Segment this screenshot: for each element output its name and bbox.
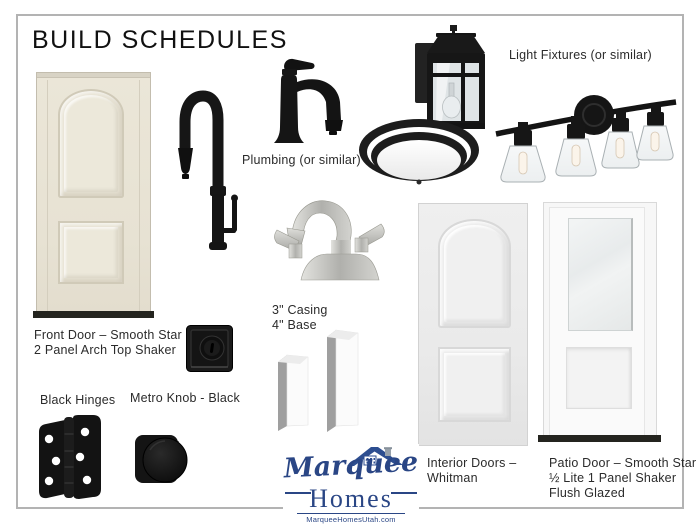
front-door-label: Front Door – Smooth Star 2 Panel Arch To…	[34, 328, 182, 358]
interior-doors-label: Interior Doors – Whitman	[427, 456, 516, 486]
interior-door-image	[418, 203, 528, 446]
front-door-stile-line	[139, 80, 140, 311]
marquee-homes-logo: Marquee Homes MarqueeHomesUtah.com	[283, 444, 419, 524]
square-deadbolt-image	[186, 325, 233, 372]
vanity-bar-light-image	[490, 84, 682, 184]
bath-faucet-nickel-image	[270, 188, 388, 283]
patio-door-threshold	[538, 435, 661, 442]
front-door-bottom-panel	[58, 221, 124, 284]
sprayer-head	[178, 148, 193, 174]
kitchen-faucet-black-image	[172, 90, 257, 252]
front-door-bottom-panel-inner	[64, 227, 118, 278]
trim-label: 3" Casing 4" Base	[272, 303, 328, 333]
interior-door-bottom-panel-inner	[444, 353, 505, 416]
base-side	[327, 330, 336, 432]
metro-knob-label: Metro Knob - Black	[130, 391, 240, 406]
faucet-spout	[297, 79, 341, 120]
base-label-line: 4" Base	[272, 318, 328, 333]
build-schedules-sheet: BUILD SCHEDULES Front Door – Smooth Star…	[0, 0, 700, 525]
light-fixtures-label: Light Fixtures (or similar)	[509, 48, 652, 63]
page-title: BUILD SCHEDULES	[32, 26, 288, 55]
casing-base-trim-image	[274, 324, 364, 434]
patio-door-glass	[568, 218, 633, 331]
metro-knob-image	[132, 428, 190, 492]
interior-doors-label-line2: Whitman	[427, 471, 516, 486]
interior-door-arch-panel-inner	[444, 225, 505, 322]
interior-door-bottom-panel	[438, 347, 511, 422]
patio-door-panel	[566, 347, 632, 409]
front-door-label-line1: Front Door – Smooth Star	[34, 328, 182, 343]
front-door-frame-header	[37, 73, 150, 78]
patio-door-label: Patio Door – Smooth Star ½ Lite 1 Panel …	[549, 456, 696, 501]
front-door-label-line2: 2 Panel Arch Top Shaker	[34, 343, 182, 358]
casing-side	[278, 355, 287, 431]
light-dome	[377, 140, 461, 180]
bath-faucet-black-image	[255, 52, 350, 152]
faucet-base	[301, 254, 379, 280]
lantern-cap	[427, 35, 485, 53]
casing-label-line: 3" Casing	[272, 303, 328, 318]
faucet-body	[212, 194, 224, 246]
logo-website: MarqueeHomesUtah.com	[297, 513, 405, 524]
front-door-threshold	[33, 311, 154, 318]
patio-door-image	[543, 202, 657, 442]
patio-door-label-line1: Patio Door – Smooth Star	[549, 456, 696, 471]
logo-wordmark-script: Marquee	[282, 446, 419, 484]
knob-face	[143, 438, 187, 482]
flush-mount-ceiling-light-image	[356, 112, 484, 194]
door-hinge-image	[34, 414, 104, 500]
glass-shade	[637, 104, 673, 160]
base-front	[336, 330, 358, 426]
logo-wordmark-serif: Homes	[283, 486, 419, 512]
interior-door-arch-panel	[438, 219, 511, 328]
patio-door-label-line2: ½ Lite 1 Panel Shaker	[549, 471, 696, 486]
hinge-knuckle	[64, 417, 74, 498]
plumbing-label: Plumbing (or similar)	[242, 153, 361, 168]
faucet-handle	[232, 198, 237, 232]
front-door-arch-panel	[58, 89, 124, 198]
front-door-image	[36, 72, 151, 312]
interior-doors-label-line1: Interior Doors –	[427, 456, 516, 471]
patio-door-label-line3: Flush Glazed	[549, 486, 696, 501]
front-door-arch-panel-inner	[64, 95, 118, 192]
casing-front	[287, 355, 308, 426]
black-hinges-label: Black Hinges	[40, 393, 115, 408]
front-door-stile-line	[47, 80, 48, 311]
hinge-left-leaf	[39, 420, 65, 498]
